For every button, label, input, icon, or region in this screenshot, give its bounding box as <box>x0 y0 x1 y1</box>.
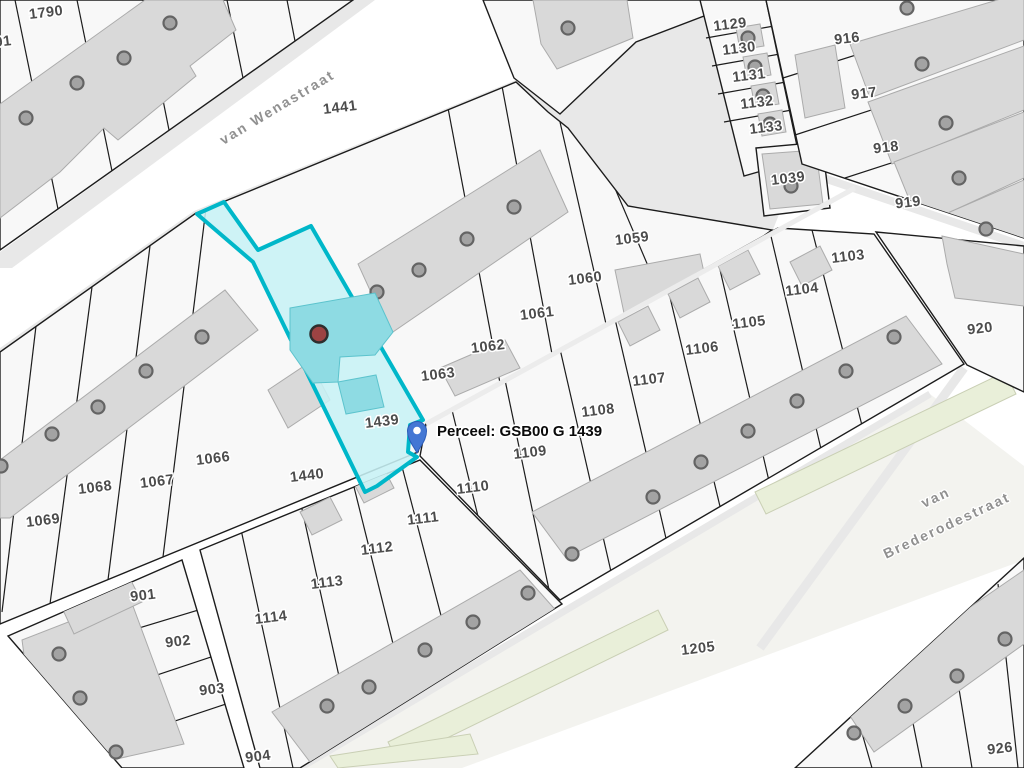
building-dot <box>71 77 84 90</box>
building-dot <box>695 456 708 469</box>
building-dot <box>53 648 66 661</box>
location-pin-hole <box>413 427 421 435</box>
building-dot <box>419 644 432 657</box>
highlight-building-2 <box>338 375 384 414</box>
building-dot <box>562 22 575 35</box>
cadastral-map[interactable]: 1790911441112911301131113211331039916917… <box>0 0 1024 768</box>
building-dot <box>164 17 177 30</box>
parcel-label-920: 920 <box>966 319 993 338</box>
parcel-callout-label: Perceel: GSB00 G 1439 <box>437 423 602 440</box>
building-dot <box>791 395 804 408</box>
street-label-left-fragment: aat <box>0 690 3 721</box>
building-dot <box>940 117 953 130</box>
building-dot <box>888 331 901 344</box>
parcel-label-917: 917 <box>850 84 877 103</box>
building-dot <box>647 491 660 504</box>
building-dot <box>522 587 535 600</box>
building-dot <box>196 331 209 344</box>
building-dot <box>20 112 33 125</box>
building-dot <box>901 2 914 15</box>
building-dot <box>742 425 755 438</box>
map-canvas[interactable]: 1790911441112911301131113211331039916917… <box>0 0 1024 768</box>
building-dot <box>916 58 929 71</box>
building-dot <box>461 233 474 246</box>
parcel-label-916: 916 <box>833 29 860 48</box>
building-dot <box>980 223 993 236</box>
building-dot <box>951 670 964 683</box>
building-dot <box>413 264 426 277</box>
building-dot <box>46 428 59 441</box>
parcel-label-91: 91 <box>0 33 13 51</box>
building-dot <box>110 746 123 759</box>
building-dot <box>92 401 105 414</box>
building-dot <box>953 172 966 185</box>
parcel-label-903: 903 <box>198 680 225 699</box>
building-dot <box>999 633 1012 646</box>
parcel-label-902: 902 <box>164 632 191 651</box>
block-916-919[interactable] <box>766 0 1024 250</box>
building-dot <box>508 201 521 214</box>
parcel-label-919: 919 <box>894 193 921 212</box>
parcel-label-1441: 1441 <box>322 98 358 118</box>
parcel-label-926: 926 <box>986 739 1013 758</box>
building-dot <box>321 700 334 713</box>
building-dot <box>363 681 376 694</box>
building-dot <box>899 700 912 713</box>
parcel-label-904: 904 <box>244 747 271 766</box>
building-dot <box>0 460 8 473</box>
parcel-label-918: 918 <box>872 138 899 157</box>
building-dot <box>118 52 131 65</box>
building-dot <box>140 365 153 378</box>
parcel-label-901: 901 <box>129 586 156 605</box>
building-dot <box>74 692 87 705</box>
building-dot <box>467 616 480 629</box>
parcel-centroid-dot <box>311 326 328 343</box>
building-dot <box>566 548 579 561</box>
building-dot <box>848 727 861 740</box>
building-dot <box>840 365 853 378</box>
